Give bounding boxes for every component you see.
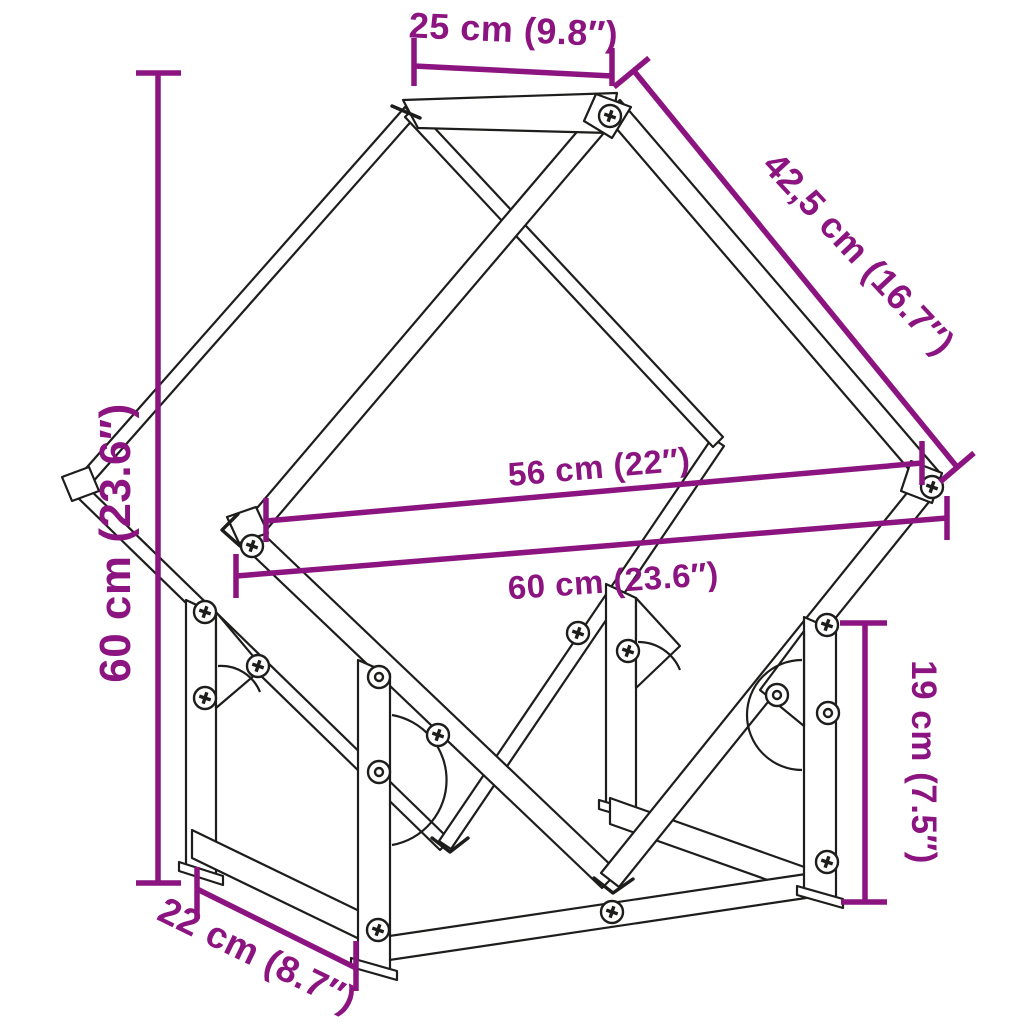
dimension-leg-height: 19 cm (7.5″) [840, 623, 943, 902]
dimension-overall-height: 60 cm (23.6″) [91, 73, 181, 883]
phillips-screw-icon [194, 687, 216, 709]
dimension-label-top-depth: 25 cm (9.8″) [408, 4, 619, 54]
leg-bar [606, 584, 636, 816]
phillips-screw-icon [194, 601, 216, 623]
ring-screw-icon [817, 702, 839, 724]
ring-screw-icon [368, 666, 390, 688]
rear-right-leg [599, 584, 680, 822]
phillips-screw-icon [617, 640, 639, 662]
firewood-rack-dimension-diagram: 25 cm (9.8″) 42,5 cm (16.7″) 60 cm (23.6… [0, 0, 1024, 1024]
ring-screw-icon [368, 761, 390, 783]
phillips-screw-icon [816, 614, 838, 636]
dimension-line [414, 66, 612, 76]
ring-screw-icon [766, 684, 788, 706]
phillips-screw-icon [599, 105, 621, 127]
dimension-slanted-side: 42,5 cm (16.7″) [614, 58, 974, 482]
diagram-canvas: 25 cm (9.8″) 42,5 cm (16.7″) 60 cm (23.6… [0, 0, 1024, 1024]
phillips-screw-icon [367, 919, 389, 941]
dimension-label-leg-height: 19 cm (7.5″) [904, 660, 943, 864]
phillips-screw-icon [247, 655, 269, 677]
phillips-screw-icon [567, 622, 589, 644]
dimension-tick [940, 453, 974, 482]
phillips-screw-icon [601, 901, 623, 923]
phillips-screw-icon [241, 535, 263, 557]
front-bottom-rail [376, 874, 806, 962]
top-bar [403, 93, 617, 133]
dimension-label-overall-height: 60 cm (23.6″) [91, 403, 140, 683]
phillips-screw-icon [816, 851, 838, 873]
phillips-screw-icon [427, 724, 449, 746]
dimension-top-depth: 25 cm (9.8″) [408, 4, 619, 86]
dimension-label-overall-width: 60 cm (23.6″) [507, 555, 720, 607]
